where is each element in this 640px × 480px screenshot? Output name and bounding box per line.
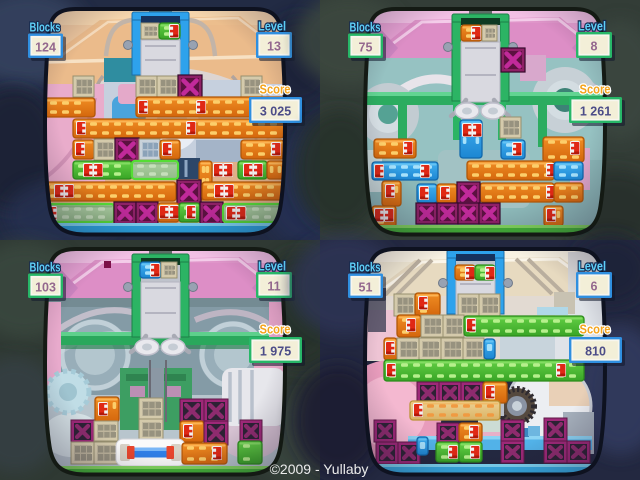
svg-text:Level: Level — [578, 260, 606, 274]
svg-text:Score: Score — [260, 323, 291, 337]
svg-text:6: 6 — [591, 280, 598, 294]
svg-text:11: 11 — [267, 280, 280, 294]
svg-text:Blocks: Blocks — [350, 261, 381, 275]
svg-text:8: 8 — [591, 40, 598, 54]
svg-text:Blocks: Blocks — [30, 21, 61, 35]
svg-text:1 975: 1 975 — [260, 345, 291, 359]
svg-text:Blocks: Blocks — [30, 261, 61, 275]
svg-text:Level: Level — [258, 20, 286, 34]
svg-text:Score: Score — [580, 323, 611, 337]
svg-text:Score: Score — [260, 83, 291, 97]
svg-text:Level: Level — [578, 20, 606, 34]
svg-text:Blocks: Blocks — [350, 21, 381, 35]
svg-text:103: 103 — [35, 280, 56, 294]
svg-text:124: 124 — [35, 40, 56, 54]
svg-text:Level: Level — [258, 260, 286, 274]
svg-text:3 025: 3 025 — [260, 105, 291, 119]
svg-text:Score: Score — [580, 83, 611, 97]
svg-text:13: 13 — [267, 40, 281, 54]
svg-text:1 261: 1 261 — [580, 105, 611, 119]
svg-text:©2009 - Yullaby: ©2009 - Yullaby — [270, 461, 369, 477]
svg-text:810: 810 — [585, 345, 606, 359]
svg-text:75: 75 — [359, 40, 373, 54]
svg-text:51: 51 — [359, 280, 373, 294]
